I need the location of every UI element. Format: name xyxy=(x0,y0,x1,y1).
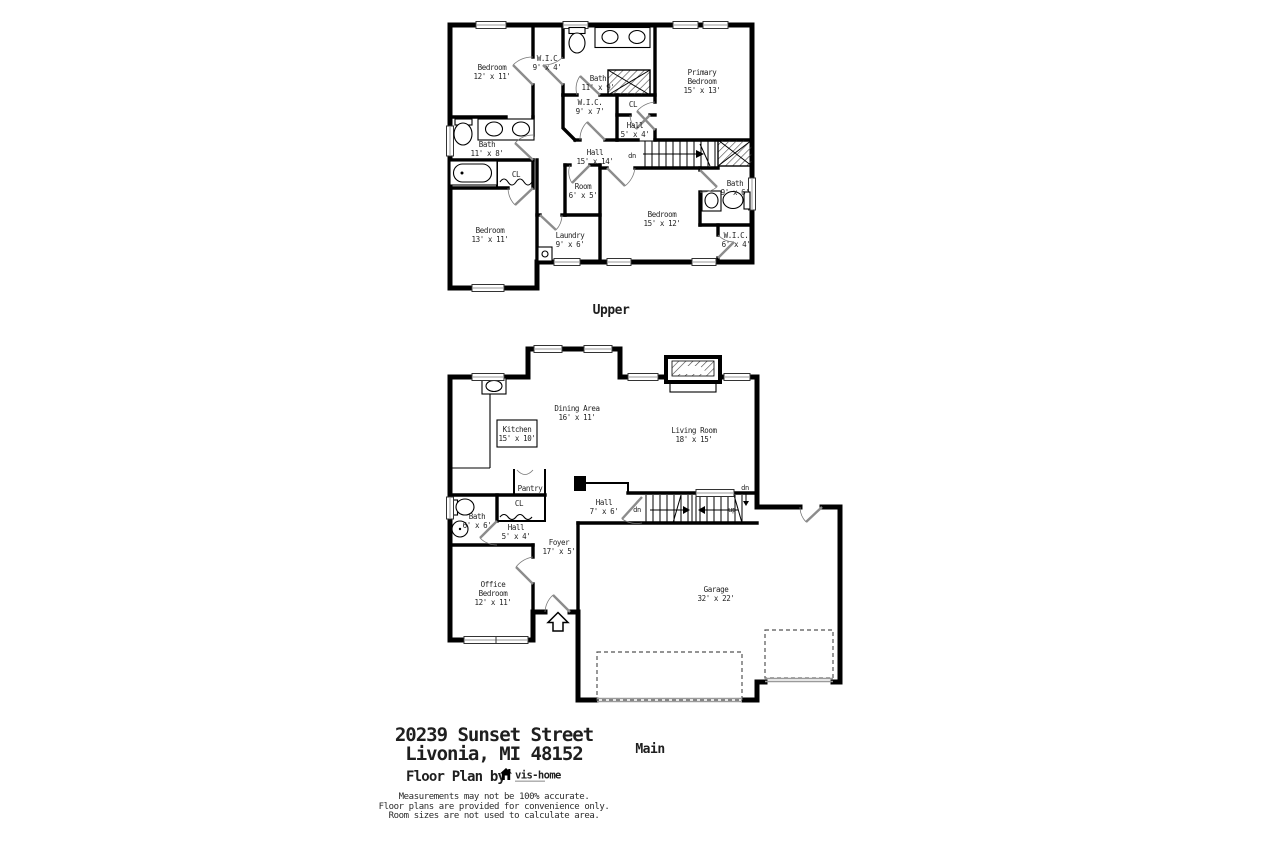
room-label: Bedroom xyxy=(688,77,718,86)
room-label: Bath xyxy=(479,140,495,149)
room-dims: 32' x 22' xyxy=(697,594,734,603)
closet-rod xyxy=(500,179,532,185)
room-label: W.I.C. xyxy=(578,98,603,107)
upper-floor-plan: Bedroom 12' x 11' W.I.C 9' x 4' Bath 11'… xyxy=(447,22,756,319)
floor-plan-canvas: Bedroom 12' x 11' W.I.C 9' x 4' Bath 11'… xyxy=(0,0,1280,853)
room-dims: 11' x 9' xyxy=(582,83,615,92)
toilet-icon xyxy=(569,33,585,53)
room-label: Foyer xyxy=(549,538,570,547)
garage-doors xyxy=(597,630,833,702)
room-label: W.I.C xyxy=(537,54,558,63)
address-line2: Livonia, MI 48152 xyxy=(405,743,582,765)
vis-home-logo: vis-home xyxy=(500,768,561,782)
room-label: Kitchen xyxy=(503,425,532,434)
room-dims: 9' x 6' xyxy=(556,240,585,249)
room-dims: 17' x 5' xyxy=(543,547,576,556)
room-label: Hall xyxy=(596,498,612,507)
room-label: Garage xyxy=(704,585,730,594)
laundry-tub-icon xyxy=(538,247,552,261)
upper-floor-label: Upper xyxy=(593,303,630,318)
room-dims: 9' x 7' xyxy=(576,107,605,116)
stairs-dn-label: dn xyxy=(633,506,641,514)
entry-arrow-icon xyxy=(548,613,568,632)
stairs-dn-label: dn xyxy=(741,484,749,492)
room-dims: 6' x 5' xyxy=(569,191,598,200)
room-dims: 7' x 6' xyxy=(590,507,619,516)
room-label: Bath xyxy=(590,74,606,83)
room-label: Bedroom xyxy=(476,226,506,235)
room-label: CL xyxy=(629,100,638,109)
room-dims: 15' x 13' xyxy=(683,86,720,95)
room-label: Pantry xyxy=(518,484,544,493)
room-label: Bath xyxy=(727,179,743,188)
bathtub-icon xyxy=(450,161,497,185)
stairs-dn-label: dn xyxy=(628,152,636,160)
credit-text: Floor Plan by xyxy=(406,769,507,785)
room-dims: 5' x 4' xyxy=(621,130,650,139)
logo-text: vis-home xyxy=(515,770,561,782)
room-dims: 11' x 8' xyxy=(471,149,504,158)
toilet-icon xyxy=(454,123,472,145)
room-dims: 12' x 11' xyxy=(474,598,511,607)
room-label: Hall xyxy=(587,148,603,157)
room-label: CL xyxy=(512,170,521,179)
room-dims: 6' x 4' xyxy=(722,240,751,249)
room-dims: 5' x 4' xyxy=(502,532,531,541)
room-dims: 15' x 10' xyxy=(498,434,535,443)
room-label: Bath xyxy=(469,512,485,521)
room-label: Bedroom xyxy=(479,589,509,598)
disclaimer-line: Measurements may not be 100% accurate. xyxy=(399,792,590,802)
room-dims: 13' x 11' xyxy=(471,235,508,244)
room-label: Laundry xyxy=(556,231,586,240)
main-room-labels: Dining Area 16' x 11' Kitchen 15' x 10' … xyxy=(463,404,749,607)
stairs-up-label: up xyxy=(728,506,736,514)
room-dims: 12' x 11' xyxy=(473,72,510,81)
main-floor-plan: Dining Area 16' x 11' Kitchen 15' x 10' … xyxy=(447,346,841,758)
closet-rod xyxy=(500,515,532,520)
room-label: Bedroom xyxy=(478,63,508,72)
room-label: Hall xyxy=(627,121,643,130)
kitchen-counters xyxy=(450,378,537,520)
room-dims: 9' x 6' xyxy=(721,188,750,197)
room-label: Office xyxy=(481,580,507,589)
disclaimer-line: Room sizes are not used to calculate are… xyxy=(389,811,600,821)
room-label: Hall xyxy=(508,523,524,532)
room-dims: 18' x 15' xyxy=(675,435,712,444)
fireplace-icon xyxy=(666,357,720,392)
room-label: CL xyxy=(515,499,524,508)
footer: 20239 Sunset Street Livonia, MI 48152 Fl… xyxy=(379,724,610,821)
room-label: W.I.C. xyxy=(724,231,749,240)
vanity xyxy=(478,119,534,140)
main-floor-label: Main xyxy=(635,742,664,757)
upper-stairs xyxy=(638,140,752,167)
room-dims: 6' x 6' xyxy=(463,521,492,530)
vanity xyxy=(595,28,650,48)
room-label: Dining Area xyxy=(554,404,599,413)
room-dims: 9' x 4' xyxy=(533,63,562,72)
room-label: Bedroom xyxy=(648,210,678,219)
room-dims: 15' x 12' xyxy=(643,219,680,228)
room-dims: 15' x 14' xyxy=(576,157,613,166)
room-label: Room xyxy=(575,182,592,191)
room-label: Primary xyxy=(688,68,718,77)
garage-door-outline xyxy=(597,652,742,700)
room-dims: 16' x 11' xyxy=(558,413,595,422)
garage-door-outline xyxy=(765,630,833,678)
room-label: Living Room xyxy=(671,426,717,435)
logo-tagline xyxy=(515,781,545,782)
pantry-door-arc xyxy=(517,470,533,475)
